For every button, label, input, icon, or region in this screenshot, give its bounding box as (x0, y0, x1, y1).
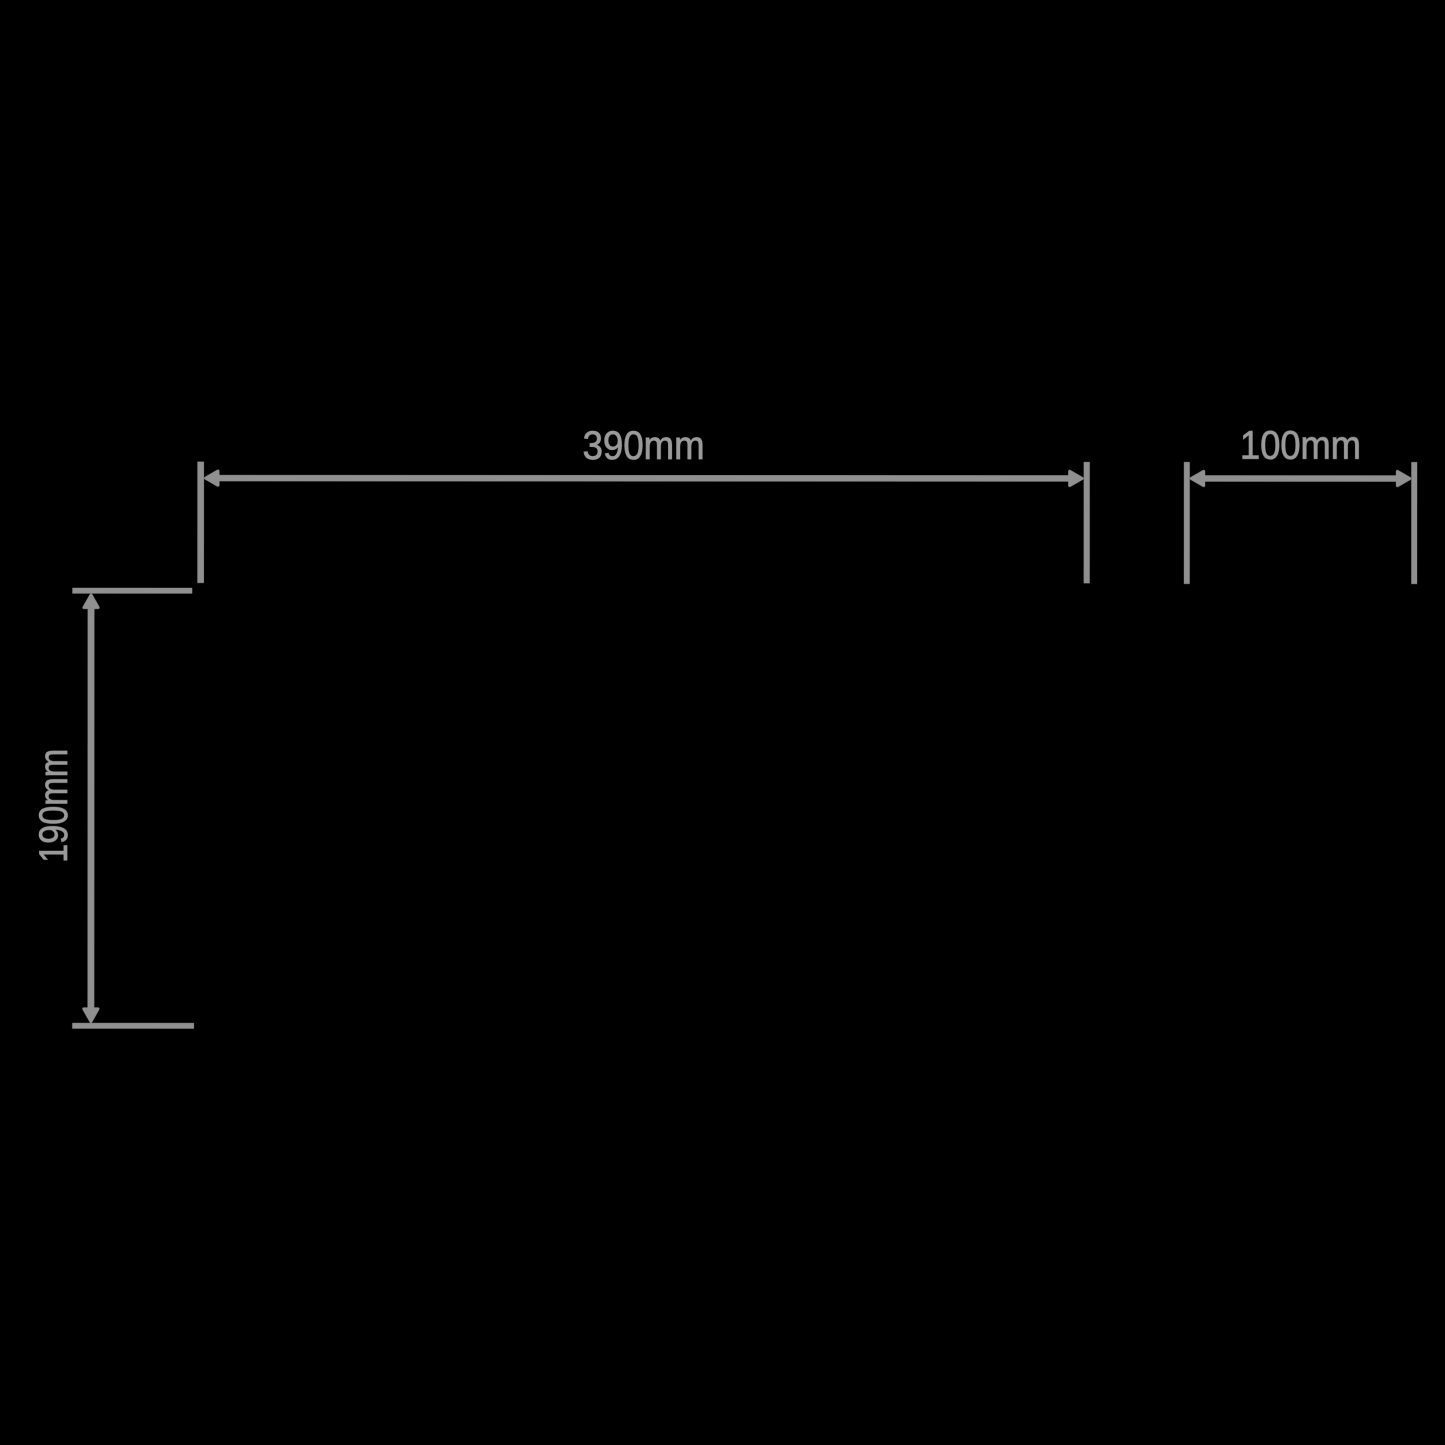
svg-text:190mm: 190mm (32, 749, 76, 863)
svg-text:100mm: 100mm (1240, 424, 1361, 468)
svg-text:390mm: 390mm (583, 424, 705, 468)
